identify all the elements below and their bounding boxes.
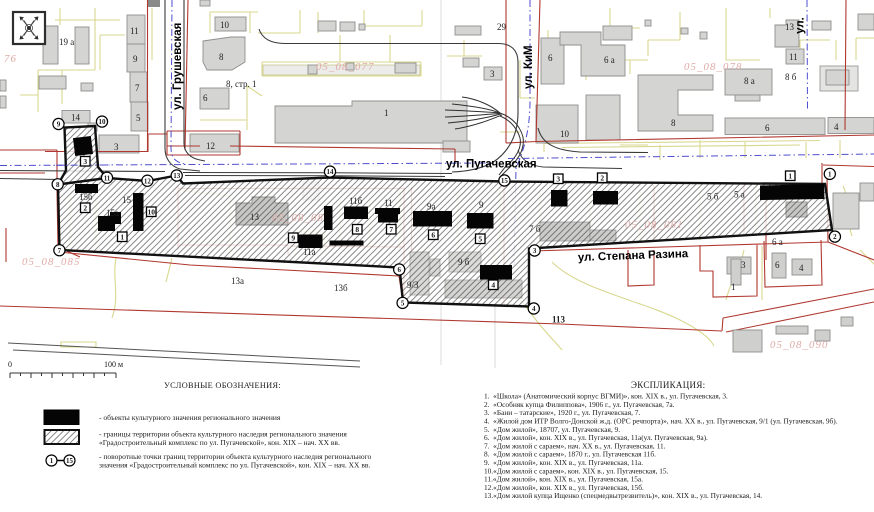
svg-text:6: 6 bbox=[765, 123, 770, 133]
svg-text:11: 11 bbox=[789, 52, 798, 62]
svg-text:3: 3 bbox=[114, 142, 119, 152]
svg-text:7: 7 bbox=[58, 247, 62, 255]
svg-text:13: 13 bbox=[785, 22, 795, 32]
svg-text:15: 15 bbox=[66, 457, 74, 465]
svg-text:«Градостроительный комплекс по: «Градостроительный комплекс по ул. Пугач… bbox=[99, 438, 340, 447]
svg-text:9 б: 9 б bbox=[458, 257, 470, 267]
svg-text:значения «Градостроительный ко: значения «Градостроительный комплекс по … bbox=[99, 461, 370, 470]
svg-text:1: 1 bbox=[384, 108, 389, 118]
svg-text:11а: 11а bbox=[303, 247, 316, 257]
svg-text:6: 6 bbox=[431, 230, 435, 239]
svg-text:14: 14 bbox=[327, 168, 335, 176]
svg-text:10: 10 bbox=[560, 129, 570, 139]
svg-text:05_08_078: 05_08_078 bbox=[684, 61, 743, 73]
svg-text:19 а: 19 а bbox=[59, 37, 74, 47]
svg-text:12: 12 bbox=[144, 177, 152, 185]
svg-text:7 б: 7 б bbox=[529, 224, 541, 234]
svg-text:15: 15 bbox=[501, 177, 509, 185]
svg-text:УСЛОВНЫЕ ОБОЗНАЧЕНИЯ:: УСЛОВНЫЕ ОБОЗНАЧЕНИЯ: bbox=[164, 381, 281, 390]
svg-text:11б: 11б bbox=[349, 196, 363, 206]
svg-text:8 б: 8 б bbox=[785, 72, 797, 82]
svg-text:13: 13 bbox=[173, 172, 181, 180]
svg-text:5 б: 5 б bbox=[707, 192, 719, 202]
svg-text:4: 4 bbox=[834, 122, 839, 132]
svg-text:4: 4 bbox=[799, 263, 804, 273]
svg-text:7: 7 bbox=[389, 225, 393, 234]
svg-text:2: 2 bbox=[833, 233, 837, 241]
svg-text:14: 14 bbox=[71, 113, 81, 123]
svg-text:5: 5 bbox=[478, 234, 482, 243]
svg-text:ул. КиМ: ул. КиМ bbox=[523, 45, 535, 89]
svg-text:05_08_081: 05_08_081 bbox=[625, 219, 684, 231]
svg-text:8: 8 bbox=[219, 52, 224, 62]
svg-text:9: 9 bbox=[57, 121, 61, 129]
svg-text:9: 9 bbox=[291, 233, 295, 242]
svg-text:15б: 15б bbox=[79, 192, 93, 202]
svg-text:3: 3 bbox=[556, 174, 560, 183]
svg-text:6: 6 bbox=[397, 266, 401, 274]
svg-text:9а: 9а bbox=[427, 202, 436, 212]
svg-text:6: 6 bbox=[775, 260, 780, 270]
svg-text:2: 2 bbox=[600, 173, 604, 182]
svg-text:4: 4 bbox=[532, 305, 536, 313]
svg-text:9/3: 9/3 bbox=[407, 280, 419, 290]
svg-text:9: 9 bbox=[133, 54, 138, 64]
svg-text:ЭКСПЛИКАЦИЯ:: ЭКСПЛИКАЦИЯ: bbox=[631, 380, 705, 390]
svg-text:- объекты культурного значения: - объекты культурного значения региональ… bbox=[99, 413, 281, 422]
svg-text:05_08_077: 05_08_077 bbox=[316, 61, 375, 73]
svg-text:3: 3 bbox=[490, 69, 495, 79]
svg-text:13а: 13а bbox=[231, 276, 244, 286]
svg-text:1: 1 bbox=[120, 232, 124, 241]
svg-text:5 а: 5 а bbox=[734, 190, 745, 200]
svg-text:8: 8 bbox=[355, 225, 359, 234]
svg-text:12: 12 bbox=[206, 141, 215, 151]
svg-text:ул. Грушевская: ул. Грушевская bbox=[172, 23, 184, 110]
svg-text:10: 10 bbox=[99, 118, 107, 126]
svg-text:8: 8 bbox=[671, 118, 676, 128]
svg-text:9: 9 bbox=[479, 200, 484, 210]
svg-text:6: 6 bbox=[203, 93, 208, 103]
svg-text:05_08_08: 05_08_08 bbox=[272, 212, 324, 224]
svg-text:10: 10 bbox=[148, 207, 156, 216]
svg-text:1: 1 bbox=[828, 171, 832, 179]
svg-text:13б: 13б bbox=[334, 283, 348, 293]
svg-text:8, стр. 1: 8, стр. 1 bbox=[226, 79, 257, 89]
svg-text:3: 3 bbox=[741, 260, 746, 270]
svg-text:13.«Дом жилой купца Ищенко (сп: 13.«Дом жилой купца Ищенко (спецмедвытре… bbox=[484, 491, 762, 500]
svg-text:15: 15 bbox=[122, 195, 132, 205]
svg-text:1: 1 bbox=[50, 457, 54, 465]
svg-text:6: 6 bbox=[548, 53, 553, 63]
svg-text:8: 8 bbox=[56, 181, 60, 189]
svg-text:05_08_085: 05_08_085 bbox=[22, 256, 81, 268]
svg-text:11: 11 bbox=[130, 26, 139, 36]
svg-text:15а: 15а bbox=[106, 208, 119, 218]
svg-text:76: 76 bbox=[4, 53, 17, 65]
svg-text:113: 113 bbox=[552, 315, 566, 325]
svg-text:3: 3 bbox=[533, 247, 537, 255]
svg-text:8 а: 8 а bbox=[744, 76, 755, 86]
svg-text:4: 4 bbox=[491, 280, 495, 289]
svg-text:29: 29 bbox=[497, 22, 507, 32]
svg-text:1: 1 bbox=[788, 171, 792, 180]
svg-text:7: 7 bbox=[135, 83, 140, 93]
svg-text:1: 1 bbox=[731, 282, 736, 292]
svg-text:ул. Пугачевская: ул. Пугачевская bbox=[446, 159, 537, 171]
svg-text:5: 5 bbox=[136, 113, 141, 123]
svg-text:100 м: 100 м bbox=[104, 360, 123, 369]
svg-text:6 а: 6 а bbox=[772, 237, 783, 247]
svg-text:6 а: 6 а bbox=[604, 55, 615, 65]
svg-text:3: 3 bbox=[83, 157, 87, 166]
svg-text:ул.: ул. bbox=[794, 17, 807, 34]
svg-text:5: 5 bbox=[401, 300, 405, 308]
svg-text:0: 0 bbox=[8, 360, 12, 369]
svg-text:10: 10 bbox=[220, 20, 230, 30]
svg-text:2: 2 bbox=[83, 203, 87, 212]
svg-text:11: 11 bbox=[104, 174, 111, 182]
svg-text:11: 11 bbox=[384, 198, 393, 208]
